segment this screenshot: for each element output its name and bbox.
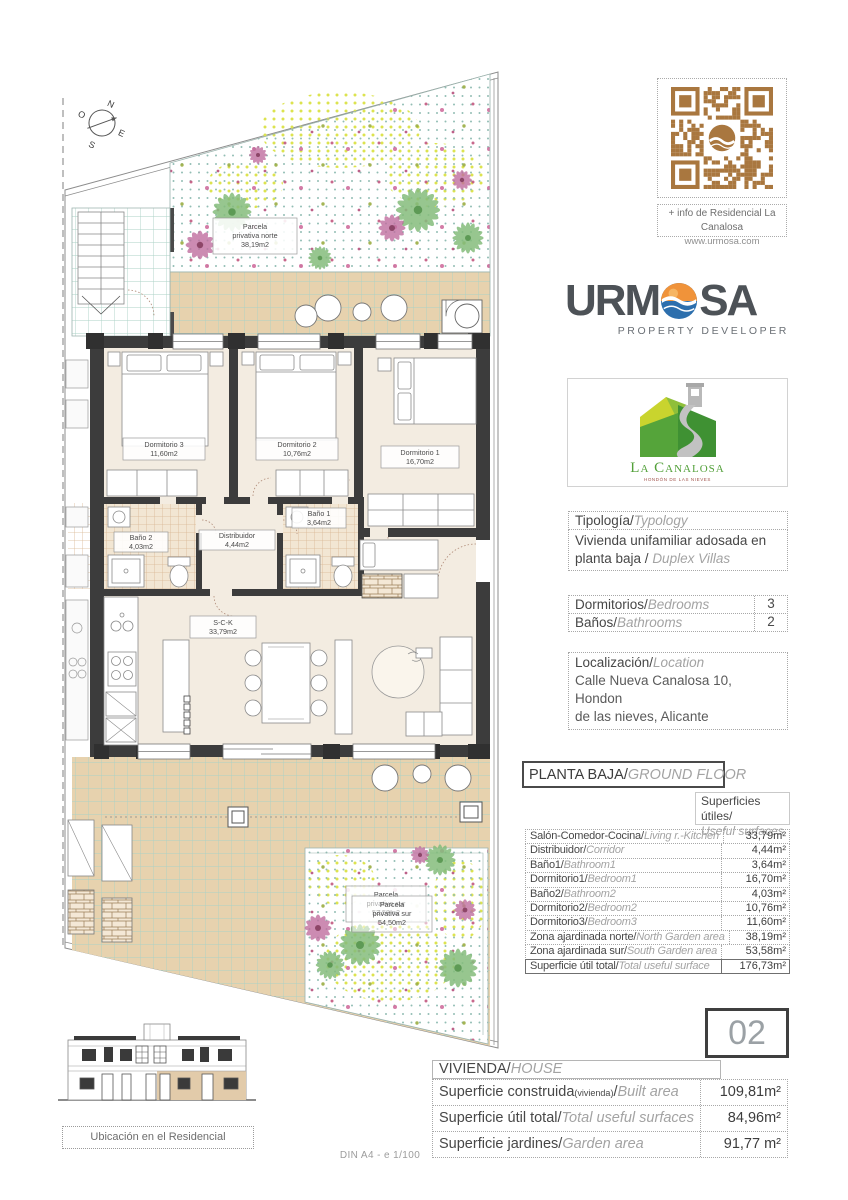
label-dorm3: Dormitorio 3 11,60m2 [123, 438, 205, 460]
compass-rose: N E S O [67, 89, 136, 160]
bedrooms-label-en: Bedrooms [648, 597, 710, 612]
table-total-row: Superficie útil total/Total useful surfa… [525, 959, 790, 974]
svg-text:Baño 1: Baño 1 [308, 509, 331, 518]
table-row: Dormitorio2/Bedroom210,76m² [525, 901, 790, 916]
table-row: Zona ajardinada norte/North Garden area3… [525, 930, 790, 945]
building-elevation [58, 1020, 256, 1110]
location-label-en: Location [653, 655, 704, 670]
qr-caption-box: + info de Residencial La Canalosa www.ur… [657, 204, 787, 237]
label-dorm1: Dormitorio 1 16,70m2 [381, 446, 459, 468]
unit-number: 02 [728, 1014, 766, 1053]
vivienda-header-en: HOUSE [511, 1061, 563, 1077]
table-row: Baño1/Bathroom13,64m² [525, 858, 790, 873]
floor-title-en: GROUND FLOOR [628, 767, 746, 783]
label-garden-north: Parcela privativa norte 38,19m2 [213, 218, 297, 254]
stairs [78, 212, 124, 314]
scale-note: DIN A4 - e 1/100 [285, 1150, 475, 1161]
table-row: Baño2/Bathroom24,03m² [525, 887, 790, 902]
label-bano1: Baño 1 3,64m2 [292, 508, 346, 528]
svg-text:Parcela: Parcela [380, 900, 404, 909]
typology-line2-en: Duplex Villas [652, 551, 730, 566]
location-label-es: Localización/ [575, 655, 653, 670]
floor-title-es: PLANTA BAJA/ [529, 767, 628, 783]
svg-text:N: N [106, 98, 116, 110]
label-sck: S-C-K 33,79m2 [190, 616, 256, 638]
south-garden: Parcela privativa sur 53,58m2 Parcela pr… [304, 844, 488, 1044]
col-header-es: Superficies útiles/ [701, 794, 760, 823]
label-dorm2: Dormitorio 2 10,76m2 [256, 438, 338, 460]
dining-table [245, 643, 327, 723]
bed-dorm2 [242, 352, 351, 440]
typology-label-en: Typology [634, 513, 688, 528]
svg-text:4,44m2: 4,44m2 [225, 540, 249, 549]
table-row: Superficie útil total/Total useful surfa… [432, 1105, 788, 1132]
svg-text:Distribuidor: Distribuidor [219, 531, 256, 540]
bathrooms-row: Baños/Bathrooms 2 [568, 613, 788, 632]
qr-code [671, 87, 773, 189]
brand-left: URM [565, 281, 659, 321]
floor-title: PLANTA BAJA/GROUND FLOOR [522, 761, 725, 788]
location-line2: de las nieves, Alicante [575, 708, 781, 726]
bedrooms-label-es: Dormitorios/ [575, 597, 648, 612]
svg-text:Parcela: Parcela [243, 222, 267, 231]
svg-text:privativa norte: privativa norte [232, 231, 277, 240]
table-row: Dormitorio1/Bedroom116,70m² [525, 872, 790, 887]
counts-table: Dormitorios/Bedrooms 3 Baños/Bathrooms 2 [568, 595, 788, 632]
peninsula-counter [335, 640, 352, 734]
floor-plan-drawing: Parcela privativa norte 38,19m2 [10, 60, 510, 1060]
table-row: Distribuidor/Corridor4,44m² [525, 843, 790, 858]
bench [404, 574, 438, 598]
typology-line1: Vivienda unifamiliar adosada en [575, 533, 766, 548]
qr-url: www.urmosa.com [658, 235, 786, 249]
house-unit: Dormitorio 3 11,60m2 Dormitorio 2 10,76m… [66, 333, 490, 759]
vivienda-header: VIVIENDA/HOUSE [432, 1060, 721, 1079]
svg-text:Dormitorio 2: Dormitorio 2 [277, 440, 316, 449]
common-stairwell [72, 208, 170, 336]
vivienda-header-es: VIVIENDA/ [439, 1061, 511, 1077]
canalosa-name: La Canalosa [630, 460, 724, 477]
bathrooms-count: 2 [754, 614, 787, 631]
svg-text:54,50m2: 54,50m2 [378, 918, 406, 927]
north-garden: Parcela privativa norte 38,19m2 [170, 74, 490, 272]
kitchen-island [163, 640, 190, 734]
typology-line2-es: planta baja / [575, 551, 652, 566]
typology-box: Tipología/Typology Vivienda unifamiliar … [568, 511, 788, 571]
bathrooms-label-en: Bathrooms [617, 615, 682, 630]
svg-text:10,76m2: 10,76m2 [283, 449, 311, 458]
svg-text:privativa sur: privativa sur [373, 909, 412, 918]
svg-text:33,79m2: 33,79m2 [209, 627, 237, 636]
canalosa-town: HONDÓN DE LAS NIEVES [644, 477, 711, 482]
qr-caption-text: + info de Residencial La Canalosa [658, 207, 786, 235]
brand-right: SA [699, 281, 756, 321]
location-line1: Calle Nueva Canalosa 10, Hondon [575, 672, 781, 708]
bathrooms-label-es: Baños/ [575, 615, 617, 630]
canalosa-logo [626, 383, 730, 459]
stair-flight [362, 574, 402, 598]
vivienda-table: VIVIENDA/HOUSE Superficie construida(viv… [432, 1060, 788, 1158]
svg-text:Baño 2: Baño 2 [130, 533, 153, 542]
svg-text:16,70m2: 16,70m2 [406, 457, 434, 466]
kitchen-counter [104, 597, 138, 745]
daybed [360, 540, 438, 570]
svg-text:11,60m2: 11,60m2 [150, 449, 177, 458]
location-box: Localización/Location Calle Nueva Canalo… [568, 652, 788, 730]
table-row: Superficie jardines/Garden area 91,77 m² [432, 1131, 788, 1158]
table-row: Zona ajardinada sur/South Garden area53,… [525, 944, 790, 959]
bedrooms-row: Dormitorios/Bedrooms 3 [568, 595, 788, 614]
label-distribuidor: Distribuidor 4,44m2 [199, 530, 275, 550]
surfaces-table: Salón-Comedor-Cocina/Living r.-Kitchen33… [525, 829, 790, 974]
qr-code-box [657, 78, 787, 198]
canalosa-logo-box: La Canalosa HONDÓN DE LAS NIEVES [567, 378, 788, 487]
bed-dorm3 [108, 352, 223, 446]
svg-text:Dormitorio 1: Dormitorio 1 [400, 448, 439, 457]
label-bano2: Baño 2 4,03m2 [114, 532, 168, 552]
svg-text:S-C-K: S-C-K [213, 618, 233, 627]
urmosa-logo: URM SA PROPERTY DEVELOPER [565, 281, 803, 337]
unit-number-badge: 02 [705, 1008, 789, 1058]
plan-sheet: Parcela privativa norte 38,19m2 [0, 0, 848, 1200]
table-row: Superficie construida(vivienda)/Built ar… [432, 1079, 788, 1106]
svg-text:38,19m2: 38,19m2 [241, 240, 269, 249]
surfaces-column-header: Superficies útiles/ Useful surfaces [695, 792, 790, 825]
svg-text:E: E [117, 127, 127, 139]
bedrooms-count: 3 [754, 596, 787, 613]
svg-text:3,64m2: 3,64m2 [307, 518, 331, 527]
svg-text:4,03m2: 4,03m2 [129, 542, 153, 551]
residencial-location-caption: Ubicación en el Residencial [62, 1126, 254, 1149]
globe-icon [660, 282, 698, 320]
table-row: Dormitorio3/Bedroom311,60m² [525, 915, 790, 930]
svg-text:S: S [87, 139, 97, 151]
brand-tagline: PROPERTY DEVELOPER [618, 325, 789, 337]
svg-text:O: O [76, 109, 87, 121]
svg-text:Dormitorio 3: Dormitorio 3 [144, 440, 183, 449]
table-row: Salón-Comedor-Cocina/Living r.-Kitchen33… [525, 829, 790, 844]
typology-label-es: Tipología/ [575, 513, 634, 528]
label-garden-south: Parcela privativa sur 53,58m2 Parcela pr… [346, 886, 432, 932]
water-heater [442, 300, 482, 333]
